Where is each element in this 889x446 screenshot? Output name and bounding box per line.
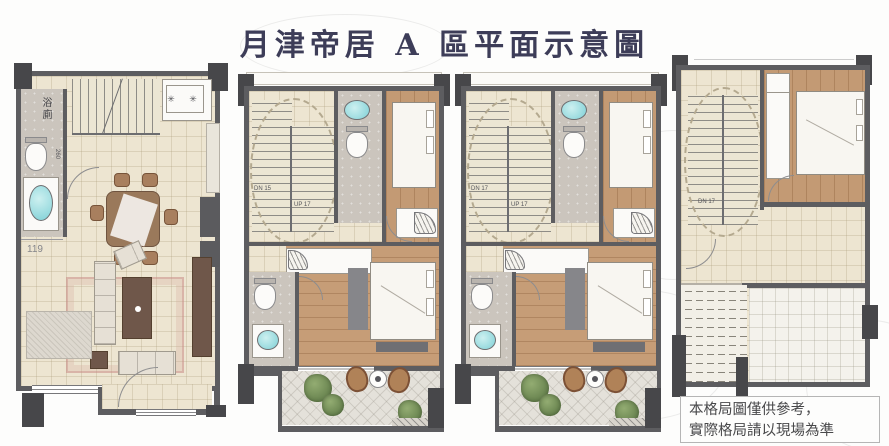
wall: [278, 371, 282, 431]
dining-chair: [114, 173, 130, 187]
staircase: [72, 79, 160, 133]
pillow: [643, 110, 651, 128]
patio-table: [586, 370, 604, 388]
sink: [29, 185, 53, 221]
sink: [474, 330, 496, 350]
entry-dimension: 119: [27, 245, 43, 255]
bathroom-label: 浴廁: [38, 97, 53, 121]
dining-chair: [90, 205, 104, 221]
pillow: [643, 136, 651, 154]
kitchen-side-counter: [206, 123, 220, 193]
exterior-column: [645, 388, 661, 428]
window: [136, 409, 196, 416]
pillow: [643, 298, 651, 316]
dining-chair: [142, 173, 158, 187]
eave-line: [694, 59, 854, 60]
stair-up-label: UP 17: [294, 202, 311, 208]
pillow: [426, 298, 434, 316]
eave-line: [463, 72, 659, 85]
floor-plan-2: DN 15 UP 17: [238, 70, 450, 442]
exterior-column: [22, 393, 44, 427]
plant: [322, 394, 344, 416]
stair-dashed-outline: [684, 87, 764, 237]
pillow: [426, 110, 434, 128]
toilet: [471, 284, 493, 310]
table-decor: [135, 306, 141, 312]
disclaimer-line-1: 本格局圖僅供參考，: [689, 400, 871, 421]
wall: [764, 202, 865, 207]
pillow: [643, 270, 651, 288]
disclaimer-line-2: 實際格局請以現場為準: [689, 421, 871, 442]
chaise-chair: [348, 268, 368, 330]
side-table: [90, 351, 108, 369]
floor-plan-sheet: 月津帝居 A 區平面示意圖 浴廁 260 119 ✳ ✳: [0, 0, 889, 446]
stair-railing: [72, 133, 160, 135]
stair-down-label: DN 15: [254, 186, 271, 192]
table-runner: [110, 194, 158, 247]
carpet: [26, 311, 92, 359]
stair-down-label: DN 17: [471, 186, 488, 192]
sofa: [94, 261, 116, 345]
bed-bench: [593, 342, 645, 352]
terrace-floor: [749, 288, 865, 382]
wall: [278, 426, 444, 432]
stair-dashed-outline: [250, 98, 338, 244]
toilet: [25, 143, 47, 171]
corner-column: [14, 63, 32, 89]
disclaimer-box: 本格局圖僅供參考， 實際格局請以現場為準: [680, 396, 880, 443]
exterior-column: [455, 364, 471, 404]
exterior-column: [238, 364, 254, 404]
stove-burner-icons: ✳ ✳: [167, 94, 203, 105]
plant: [539, 394, 561, 416]
table-decor: [375, 376, 381, 382]
exterior-column: [672, 335, 686, 397]
pillow: [426, 270, 434, 288]
blanket-fold: [806, 119, 854, 145]
chaise-chair: [565, 268, 585, 330]
blanket-fold: [598, 285, 643, 313]
wall: [495, 371, 499, 431]
table-decor: [592, 376, 598, 382]
pillow: [856, 125, 863, 141]
floor-plan-1: 浴廁 260 119 ✳ ✳: [14, 63, 228, 415]
toilet: [254, 284, 276, 310]
dining-chair: [164, 209, 178, 225]
stair-dashed-outline: [467, 98, 555, 244]
sink: [344, 100, 370, 120]
blanket-fold: [381, 285, 426, 313]
wall: [63, 89, 67, 237]
eave-line: [246, 72, 442, 85]
toilet: [346, 132, 368, 158]
tv-cabinet: [192, 257, 212, 357]
wall: [495, 426, 661, 432]
toilet: [563, 132, 585, 158]
refrigerator: [200, 197, 220, 237]
dimension-line: [21, 239, 63, 240]
storage-box: [766, 73, 790, 93]
exterior-column: [736, 357, 748, 397]
sink: [561, 100, 587, 120]
stove: ✳ ✳: [166, 85, 204, 113]
floor-plan-4: DN 17: [672, 55, 888, 403]
pillow: [856, 99, 863, 115]
pillow: [426, 136, 434, 154]
bathroom-dimension: 260: [54, 149, 60, 159]
coffee-table: [122, 277, 152, 339]
floor-plan-3: DN 17 UP 17: [455, 70, 667, 442]
bed-bench: [376, 342, 428, 352]
exterior-column: [862, 305, 878, 339]
bed: [796, 91, 865, 175]
exterior-column: [206, 405, 226, 417]
patio-table: [369, 370, 387, 388]
dining-table: [106, 191, 160, 247]
sink: [257, 330, 279, 350]
stair-up-label: UP 17: [511, 202, 528, 208]
exterior-column: [428, 388, 444, 428]
stair-down-label: DN 17: [698, 199, 715, 205]
